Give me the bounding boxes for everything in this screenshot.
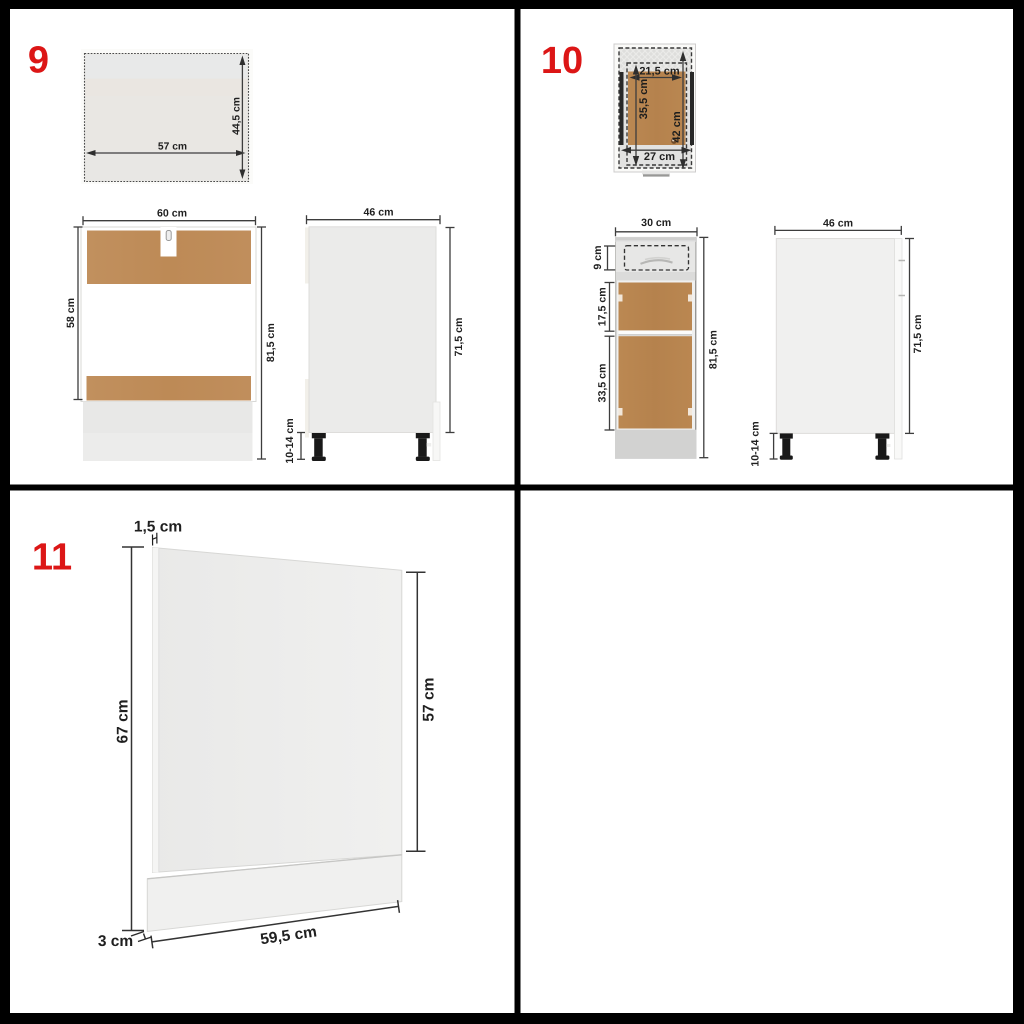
- svg-text:42 cm: 42 cm: [671, 111, 683, 142]
- svg-text:81,5 cm: 81,5 cm: [265, 323, 277, 362]
- svg-text:60 cm: 60 cm: [157, 208, 187, 220]
- svg-text:35,5 cm: 35,5 cm: [638, 79, 650, 120]
- svg-text:33,5 cm: 33,5 cm: [596, 364, 608, 403]
- svg-text:9 cm: 9 cm: [592, 245, 604, 269]
- svg-text:67 cm: 67 cm: [114, 700, 131, 744]
- svg-text:1,5 cm: 1,5 cm: [134, 518, 182, 535]
- svg-text:17,5 cm: 17,5 cm: [596, 287, 608, 326]
- svg-text:9: 9: [28, 40, 49, 82]
- svg-text:3 cm: 3 cm: [98, 933, 133, 950]
- svg-text:10-14 cm: 10-14 cm: [284, 418, 296, 463]
- svg-text:11: 11: [32, 537, 72, 579]
- svg-text:27 cm: 27 cm: [644, 151, 675, 163]
- svg-text:46 cm: 46 cm: [363, 207, 393, 219]
- svg-text:30 cm: 30 cm: [641, 217, 671, 229]
- svg-text:44,5 cm: 44,5 cm: [231, 97, 242, 135]
- svg-text:71,5 cm: 71,5 cm: [453, 318, 465, 357]
- svg-text:10-14 cm: 10-14 cm: [750, 421, 762, 466]
- svg-text:71,5 cm: 71,5 cm: [912, 315, 924, 354]
- svg-text:57 cm: 57 cm: [158, 142, 187, 153]
- svg-text:46 cm: 46 cm: [823, 217, 853, 229]
- svg-text:81,5 cm: 81,5 cm: [707, 330, 719, 369]
- svg-text:57 cm: 57 cm: [420, 678, 437, 722]
- svg-text:10: 10: [541, 40, 583, 82]
- svg-text:21,5 cm: 21,5 cm: [639, 65, 680, 77]
- svg-text:58 cm: 58 cm: [65, 298, 77, 328]
